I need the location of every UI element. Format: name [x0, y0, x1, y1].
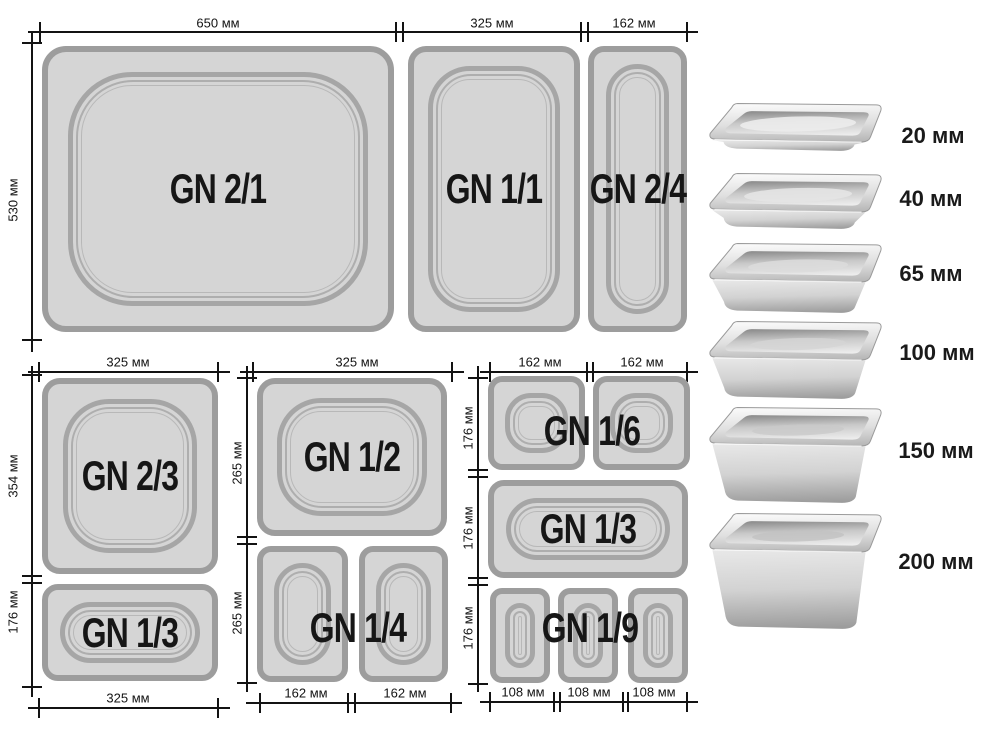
dim-bl-325-bottom: 325 мм [106, 692, 149, 705]
dim-bl-176: 176 мм [7, 590, 20, 633]
dim-mid-162-right: 162 мм [383, 687, 426, 700]
depth-label-40mm: 40 мм [899, 188, 962, 210]
depth-label-65mm: 65 мм [899, 263, 962, 285]
dim-r-108-left: 108 мм [501, 686, 544, 699]
pan-gn-2-1: GN 2/1 [42, 46, 394, 332]
dim-bl-325-top: 325 мм [106, 356, 149, 369]
dim-bl-354: 354 мм [7, 454, 20, 497]
dim-r-162-left: 162 мм [518, 356, 561, 369]
pan-photo-65mm [706, 238, 888, 322]
pan-label-gn-1-6: GN 1/6 [544, 410, 641, 452]
dim-mid-265-lower: 265 мм [231, 591, 244, 634]
pan-label-gn-1-2: GN 1/2 [304, 436, 401, 478]
pan-gn-2-3: GN 2/3 [42, 378, 218, 574]
depth-label-150mm: 150 мм [898, 440, 973, 462]
dim-r-176-middle: 176 мм [462, 506, 475, 549]
dim-mid-325-top: 325 мм [335, 356, 378, 369]
pan-label-gn-1-3-right: GN 1/3 [540, 508, 637, 550]
pan-rim [643, 603, 673, 668]
pan-gn-2-4: GN 2/4 [588, 46, 687, 332]
pan-photo-20mm [706, 98, 888, 160]
pan-label-gn-2-4: GN 2/4 [589, 168, 686, 210]
dim-650: 650 мм [196, 17, 239, 30]
pan-label-gn-1-1: GN 1/1 [446, 168, 543, 210]
dim-162-top: 162 мм [612, 17, 655, 30]
depth-label-20mm: 20 мм [901, 125, 964, 147]
dim-r-176-upper: 176 мм [462, 406, 475, 449]
pan-photo-100mm [706, 316, 888, 408]
dim-mid-265-upper: 265 мм [231, 441, 244, 484]
pan-gn-1-3-left: GN 1/3 [42, 584, 218, 681]
dim-325-top: 325 мм [470, 17, 513, 30]
pan-label-gn-1-9: GN 1/9 [542, 607, 639, 649]
depth-label-200mm: 200 мм [898, 551, 973, 573]
gastronorm-size-diagram: 650 мм 325 мм 162 мм 530 мм 325 мм 354 м… [0, 0, 998, 734]
pan-photo-40mm [706, 168, 888, 238]
pan-gn-1-2: GN 1/2 [257, 378, 447, 536]
pan-label-gn-1-3-left: GN 1/3 [82, 612, 179, 654]
pan-photo-150mm [706, 402, 888, 512]
dim-r-162-right: 162 мм [620, 356, 663, 369]
pan-rim [505, 603, 535, 668]
pan-label-gn-2-3: GN 2/3 [82, 455, 179, 497]
dim-mid-162-left: 162 мм [284, 687, 327, 700]
dim-530: 530 мм [7, 178, 20, 221]
pan-label-gn-1-4: GN 1/4 [310, 607, 407, 649]
pan-gn-1-1: GN 1/1 [408, 46, 580, 332]
dim-r-108-right: 108 мм [632, 686, 675, 699]
dim-r-108-center: 108 мм [567, 686, 610, 699]
pan-gn-1-3-right: GN 1/3 [488, 480, 688, 578]
pan-label-gn-2-1: GN 2/1 [170, 168, 267, 210]
depth-label-100mm: 100 мм [899, 342, 974, 364]
dim-r-176-lower: 176 мм [462, 606, 475, 649]
pan-photo-200mm [706, 508, 888, 638]
